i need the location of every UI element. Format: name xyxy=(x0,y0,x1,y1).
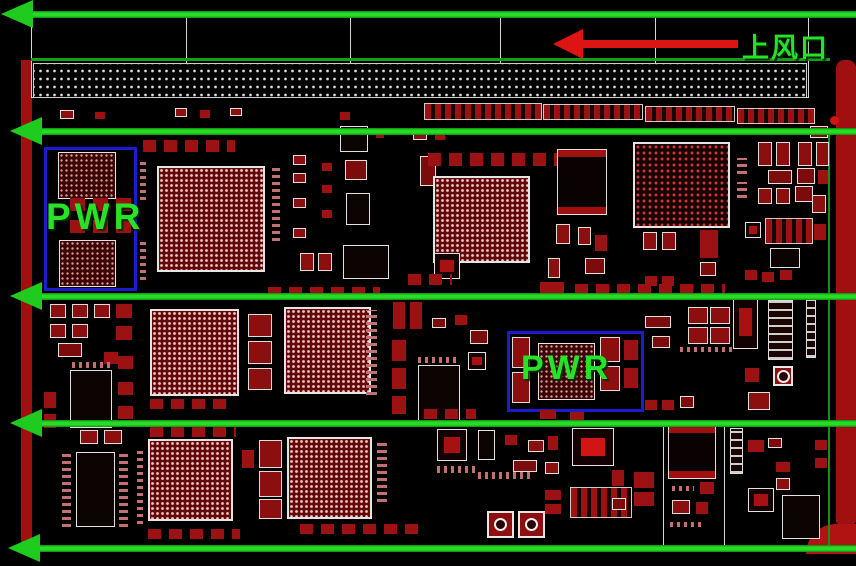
capacitor xyxy=(776,462,790,472)
airflow-arrow-shaft xyxy=(40,128,856,135)
capacitor-outlined xyxy=(748,392,770,410)
capacitor-outlined xyxy=(812,195,826,213)
capacitor xyxy=(634,472,654,488)
pin-array xyxy=(140,160,146,200)
capacitor-outlined xyxy=(776,478,790,490)
capacitor xyxy=(696,502,708,514)
pin-array xyxy=(140,238,146,280)
capacitor xyxy=(200,110,210,118)
capacitor xyxy=(745,270,757,280)
pin-array xyxy=(119,452,128,527)
ic-chip xyxy=(652,336,670,348)
bga-chip xyxy=(287,437,372,519)
chip-pad xyxy=(739,308,752,335)
capacitor xyxy=(745,368,759,382)
capacitor xyxy=(392,340,406,361)
airflow-arrow-head xyxy=(10,282,42,310)
connector-strip xyxy=(543,104,643,120)
qfn-chip xyxy=(572,428,614,466)
connector-strip xyxy=(737,108,815,124)
capacitor xyxy=(815,458,827,468)
component-row xyxy=(428,153,560,166)
capacitor-outlined xyxy=(248,314,272,337)
pcb-layout-view: PWR PWR 上风口 xyxy=(0,0,856,566)
component-row xyxy=(300,524,422,534)
capacitor xyxy=(116,326,132,340)
capacitor xyxy=(392,396,406,414)
capacitor xyxy=(505,435,517,445)
bga-chip xyxy=(157,166,265,272)
connector-strip xyxy=(424,103,542,120)
capacitor xyxy=(410,302,422,329)
capacitor-outlined xyxy=(776,188,790,204)
capacitor xyxy=(118,406,133,419)
mount-hole xyxy=(830,116,839,125)
capacitor-outlined xyxy=(94,304,110,318)
chip-pad xyxy=(754,494,768,505)
divider-line xyxy=(724,427,725,545)
pin-array xyxy=(680,347,735,352)
ic-chip xyxy=(680,396,694,408)
component-row xyxy=(150,399,234,409)
pin-array xyxy=(437,466,477,473)
capacitor xyxy=(612,470,624,486)
airflow-arrow-head xyxy=(1,0,33,28)
capacitor xyxy=(700,230,718,258)
capacitor xyxy=(815,440,827,450)
capacitor-outlined xyxy=(556,224,570,244)
capacitor-outlined xyxy=(816,142,829,166)
pin-array xyxy=(272,165,280,241)
silkscreen-line xyxy=(31,58,830,61)
button-actuator xyxy=(777,370,790,383)
capacitor xyxy=(814,224,826,240)
capacitor xyxy=(700,482,714,494)
pin-array xyxy=(377,440,387,502)
ic-chip xyxy=(343,245,389,279)
qfn-chip xyxy=(437,429,467,461)
pin-array xyxy=(672,486,694,491)
capacitor xyxy=(818,170,828,184)
top-vent-label: 上风口 xyxy=(742,26,829,65)
capacitor xyxy=(624,340,638,360)
chip-pad xyxy=(440,260,454,272)
pin-array xyxy=(478,472,530,479)
capacitor-outlined xyxy=(259,499,282,519)
ic-chip xyxy=(585,258,605,274)
capacitor-outlined xyxy=(672,500,690,514)
capacitor-outlined xyxy=(545,462,559,474)
pin-array xyxy=(737,182,747,198)
capacitor-outlined xyxy=(248,368,272,390)
pin-array xyxy=(418,357,458,363)
ic-chip xyxy=(700,262,716,276)
ic-chip xyxy=(612,498,626,510)
component-row xyxy=(424,409,476,419)
airflow-arrow-head xyxy=(10,117,42,145)
capacitor xyxy=(545,490,561,500)
sop-chip xyxy=(668,425,716,479)
connector-strip xyxy=(765,218,813,244)
pwr-label-left: PWR xyxy=(46,196,144,238)
airflow-arrow-shaft xyxy=(40,420,856,427)
capacitor-outlined xyxy=(80,430,98,444)
capacitor-outlined xyxy=(50,324,66,338)
capacitor-outlined xyxy=(230,108,242,116)
component-row xyxy=(143,140,235,152)
capacitor xyxy=(634,492,654,506)
ic-chip xyxy=(478,430,495,460)
capacitor xyxy=(545,504,561,514)
capacitor-outlined xyxy=(318,253,332,271)
chip-pad xyxy=(444,437,460,453)
capacitor-outlined xyxy=(259,471,282,497)
ic-chip xyxy=(346,193,370,225)
resistor-array xyxy=(730,428,743,474)
capacitor-outlined xyxy=(798,142,812,166)
qfn-chip xyxy=(748,488,774,512)
qfn-chip xyxy=(733,295,758,349)
board-edge-line xyxy=(828,131,830,549)
airflow-arrow-shaft xyxy=(38,545,856,552)
capacitor xyxy=(662,276,674,286)
capacitor xyxy=(393,302,405,329)
pin-array xyxy=(137,447,143,524)
capacitor xyxy=(540,282,564,293)
bga-chip xyxy=(148,439,233,521)
capacitor xyxy=(392,368,406,389)
qfn-chip xyxy=(468,352,486,370)
ic-chip xyxy=(345,160,367,180)
capacitor xyxy=(624,368,638,388)
ic-chip xyxy=(432,318,446,328)
capacitor-outlined xyxy=(548,258,560,278)
vent-arrow-shaft xyxy=(583,40,738,48)
ic-chip xyxy=(797,168,815,184)
bga-chip xyxy=(58,152,116,199)
bga-chip xyxy=(150,309,239,396)
connector-pin-field xyxy=(33,63,807,98)
capacitor xyxy=(570,412,584,420)
component-row xyxy=(150,426,236,437)
ic-chip xyxy=(782,495,820,539)
resistor-array xyxy=(806,294,816,358)
chip-pad xyxy=(749,226,757,233)
capacitor-outlined xyxy=(293,228,306,238)
divider-line xyxy=(663,427,664,545)
ic-chip xyxy=(58,343,82,357)
capacitor xyxy=(548,436,558,450)
capacitor-outlined xyxy=(293,155,306,165)
pwr-label-center: PWR xyxy=(521,349,612,388)
pin-array xyxy=(366,310,377,395)
push-button xyxy=(518,511,545,538)
capacitor-outlined xyxy=(50,304,66,318)
capacitor-outlined xyxy=(293,198,306,208)
capacitor-outlined xyxy=(60,110,74,119)
capacitor xyxy=(322,185,332,193)
capacitor xyxy=(595,235,607,251)
airflow-arrow-shaft xyxy=(26,11,856,18)
ic-chip xyxy=(645,316,671,328)
capacitor xyxy=(645,276,657,286)
ic-chip xyxy=(795,186,813,202)
component-row xyxy=(408,274,452,285)
bga-chip xyxy=(59,240,116,287)
ic-chip xyxy=(76,452,115,527)
chip-pad xyxy=(472,357,481,365)
capacitor xyxy=(340,112,350,120)
push-button xyxy=(773,366,793,386)
capacitor xyxy=(95,112,105,119)
capacitor xyxy=(44,392,56,408)
qfn-chip xyxy=(745,222,761,238)
vent-arrow-head xyxy=(553,29,583,59)
chip-pad xyxy=(581,438,604,457)
bga-chip xyxy=(633,142,730,228)
connector-strip xyxy=(645,106,735,122)
capacitor-outlined xyxy=(758,142,772,166)
capacitor-outlined xyxy=(688,327,708,344)
airflow-arrow-shaft xyxy=(40,293,856,300)
capacitor-outlined xyxy=(710,327,730,344)
push-button xyxy=(487,511,514,538)
airflow-arrow-head xyxy=(8,534,40,562)
capacitor xyxy=(748,440,764,452)
ic-chip xyxy=(768,170,792,184)
capacitor xyxy=(540,410,556,419)
capacitor xyxy=(780,270,792,280)
pin-array xyxy=(670,522,702,527)
capacitor-outlined xyxy=(710,307,730,324)
capacitor-outlined xyxy=(776,142,790,166)
capacitor xyxy=(322,210,332,218)
resistor-array xyxy=(768,300,793,360)
capacitor xyxy=(118,382,133,395)
sop-chip xyxy=(557,149,607,215)
airflow-arrow-head xyxy=(10,409,42,437)
ic-chip xyxy=(470,330,488,344)
capacitor-outlined xyxy=(758,188,772,204)
capacitor-outlined xyxy=(688,307,708,324)
capacitor-outlined xyxy=(259,440,282,468)
capacitor-outlined xyxy=(643,232,657,250)
ic-chip xyxy=(513,460,537,472)
capacitor-outlined xyxy=(175,108,187,117)
bga-chip xyxy=(284,307,371,394)
ic-chip xyxy=(768,438,782,448)
capacitor-outlined xyxy=(104,430,122,444)
capacitor-outlined xyxy=(293,173,306,183)
capacitor xyxy=(762,272,774,282)
capacitor-outlined xyxy=(578,227,591,245)
capacitor xyxy=(645,400,657,410)
capacitor xyxy=(118,356,133,369)
component-row xyxy=(148,529,240,539)
capacitor-outlined xyxy=(72,324,88,338)
capacitor-outlined xyxy=(662,232,676,250)
capacitor xyxy=(662,400,674,410)
capacitor xyxy=(116,304,132,318)
capacitor-outlined xyxy=(72,304,88,318)
capacitor xyxy=(322,163,332,171)
pin-array xyxy=(62,454,71,527)
capacitor-outlined xyxy=(248,341,272,364)
capacitor-outlined xyxy=(528,440,544,452)
pin-array xyxy=(737,158,747,174)
capacitor-outlined xyxy=(300,253,314,271)
pin-array xyxy=(72,362,112,368)
capacitor xyxy=(242,450,254,468)
button-actuator xyxy=(525,518,538,531)
ic-chip xyxy=(770,248,800,268)
bga-chip xyxy=(433,176,530,263)
capacitor xyxy=(455,315,467,325)
button-actuator xyxy=(494,518,507,531)
